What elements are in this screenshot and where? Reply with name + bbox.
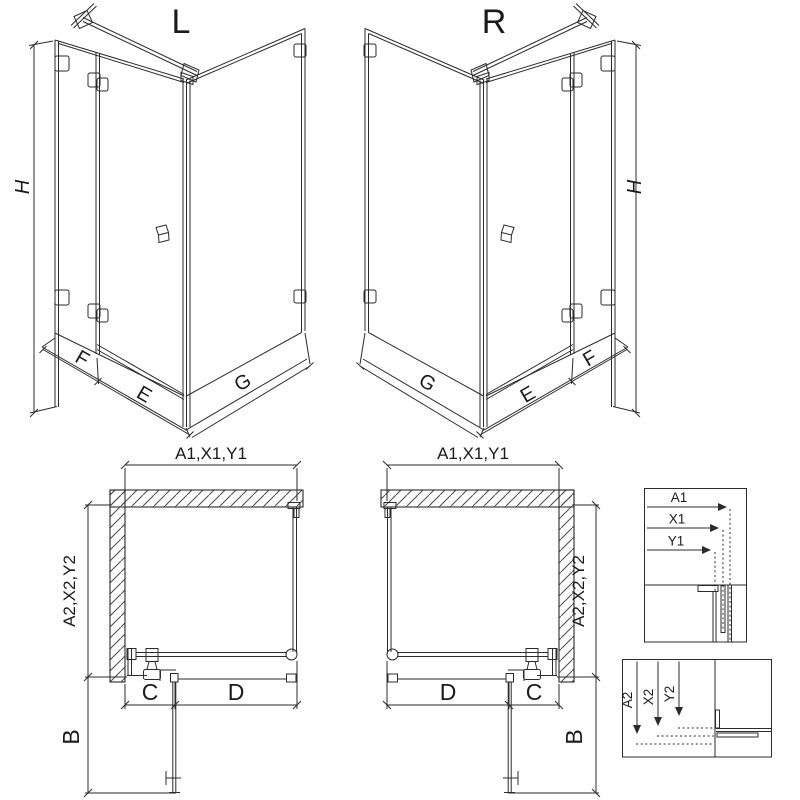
diagram-sheet: L H F E G R H F E G <box>0 0 800 800</box>
variant-right-title: R <box>482 3 507 41</box>
side-panel-bracket-top <box>294 44 306 57</box>
plan-right-width-label: A1,X1,Y1 <box>437 444 509 463</box>
plan-right-top-wall <box>381 490 574 507</box>
plan-left-width-label: A1,X1,Y1 <box>175 444 247 463</box>
dim-label-side-right: G <box>415 369 440 396</box>
hinge-top-wall <box>55 56 69 71</box>
plan-left-c-label: C <box>142 679 159 705</box>
plan-left-d-label: D <box>228 679 245 705</box>
detail-x1-label: X1 <box>669 512 686 527</box>
plan-right-depth-label: A2,X2,Y2 <box>569 555 588 627</box>
detail-y2-label: Y2 <box>662 686 677 703</box>
detail-a1-label: A1 <box>671 490 688 505</box>
plan-right-c-label: C <box>526 679 543 705</box>
dim-label-height-left: H <box>12 179 34 194</box>
dim-label-door-right: E <box>517 382 540 408</box>
dim-label-fixed-right: F <box>579 346 601 371</box>
detail-a2-label: A2 <box>620 692 635 709</box>
dim-label-height-right: H <box>624 179 646 194</box>
plan-left-depth-label: A2,X2,Y2 <box>60 555 79 627</box>
plan-right-d-label: D <box>440 679 457 705</box>
side-panel-bracket-bottom <box>294 290 306 303</box>
plan-left-swing-label: B <box>58 729 84 744</box>
variant-left-title: L <box>172 3 191 41</box>
dim-label-side-left: G <box>231 369 256 396</box>
plan-left-side-wall <box>110 490 125 682</box>
door-handle-knob <box>156 225 169 243</box>
plan-left-top-wall <box>110 490 303 507</box>
detail-x2-label: X2 <box>641 689 656 706</box>
perspective-right-geometry <box>357 4 642 439</box>
hinge-bottom-wall <box>55 290 69 305</box>
plan-right-swing-label: B <box>561 729 587 744</box>
detail-depth-box <box>623 660 772 758</box>
detail-width-box <box>645 489 747 643</box>
detail-y1-label: Y1 <box>668 534 685 549</box>
perspective-left-geometry <box>29 4 314 439</box>
diagram-canvas: L H F E G R H F E G <box>0 0 800 800</box>
